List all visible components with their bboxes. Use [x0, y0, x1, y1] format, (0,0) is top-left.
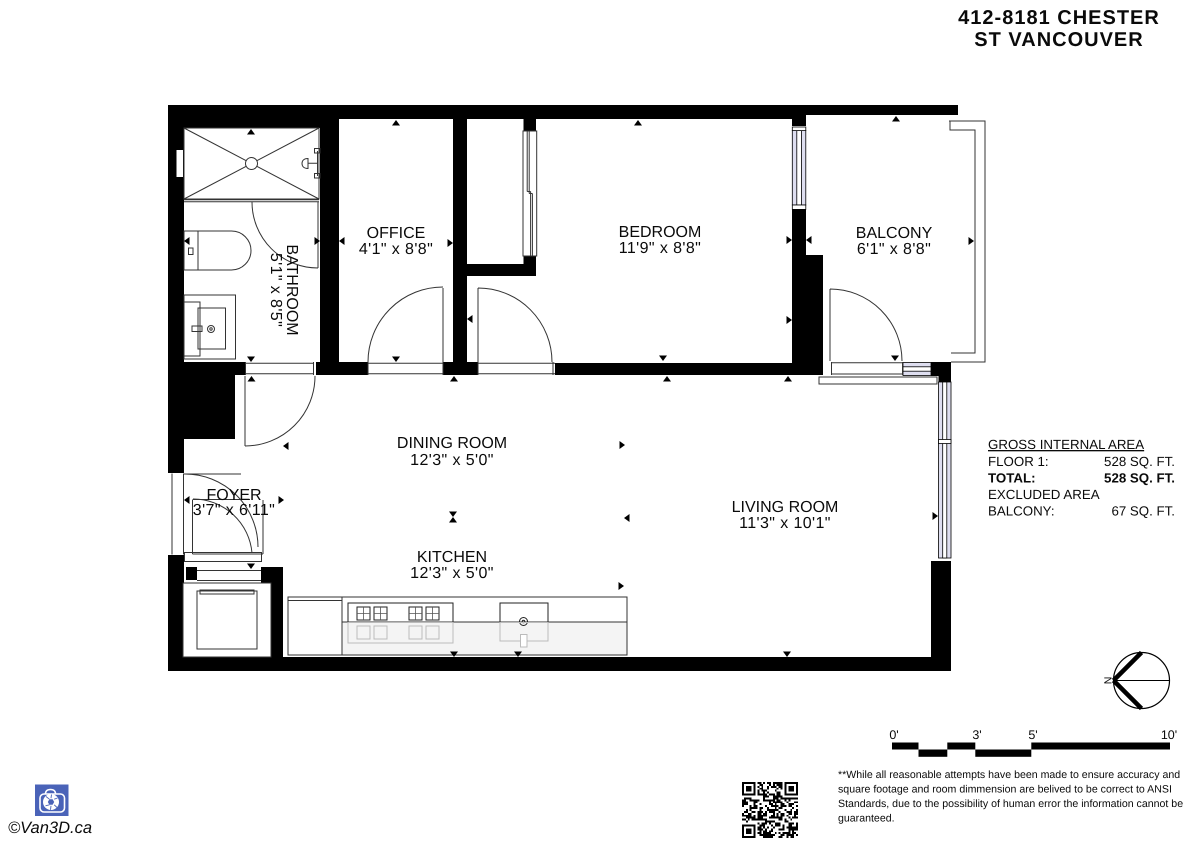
svg-text:BEDROOM: BEDROOM — [619, 224, 702, 241]
svg-text:FLOOR 1:: FLOOR 1: — [988, 454, 1049, 469]
svg-text:guaranteed.: guaranteed. — [838, 813, 895, 825]
svg-text:11'9" x 8'8": 11'9" x 8'8" — [619, 240, 701, 257]
svg-text:LIVING ROOM: LIVING ROOM — [732, 499, 839, 516]
svg-text:3': 3' — [972, 728, 981, 742]
svg-text:N: N — [1103, 677, 1115, 685]
svg-text:BALCONY:: BALCONY: — [988, 504, 1055, 519]
svg-text:KITCHEN: KITCHEN — [417, 549, 487, 566]
svg-text:10': 10' — [1161, 728, 1177, 742]
svg-text:square footage and room dimmen: square footage and room dimmension are b… — [838, 784, 1172, 796]
svg-text:4'1" x 8'8": 4'1" x 8'8" — [359, 241, 433, 258]
svg-text:6'1" x 8'8": 6'1" x 8'8" — [857, 241, 931, 258]
svg-text:5': 5' — [1028, 728, 1037, 742]
svg-text:528 SQ. FT.: 528 SQ. FT. — [1104, 454, 1175, 469]
svg-text:528 SQ. FT.: 528 SQ. FT. — [1104, 471, 1175, 486]
svg-text:EXCLUDED AREA: EXCLUDED AREA — [988, 487, 1100, 502]
svg-text:11'3" x 10'1": 11'3" x 10'1" — [739, 515, 831, 532]
svg-text:0': 0' — [889, 728, 898, 742]
svg-text:TOTAL:: TOTAL: — [988, 471, 1036, 486]
svg-text:GROSS INTERNAL AREA: GROSS INTERNAL AREA — [988, 437, 1144, 452]
svg-text:3'7" x 6'11": 3'7" x 6'11" — [193, 502, 275, 519]
svg-text:ST VANCOUVER: ST VANCOUVER — [974, 29, 1143, 51]
svg-text:412-8181 CHESTER: 412-8181 CHESTER — [958, 7, 1160, 29]
svg-text:12'3" x 5'0": 12'3" x 5'0" — [410, 565, 494, 582]
svg-text:67 SQ. FT.: 67 SQ. FT. — [1111, 504, 1175, 519]
svg-text:5'1" x 8'5": 5'1" x 8'5" — [267, 253, 284, 327]
svg-text:Standards, due to the possibil: Standards, due to the possibility of hum… — [838, 798, 1183, 810]
svg-text:12'3" x 5'0": 12'3" x 5'0" — [410, 452, 494, 469]
svg-text:BALCONY: BALCONY — [856, 225, 933, 242]
svg-text:**While all reasonable attempt: **While all reasonable attempts have bee… — [838, 769, 1180, 781]
svg-text:OFFICE: OFFICE — [367, 225, 426, 242]
svg-text:DINING ROOM: DINING ROOM — [397, 435, 507, 452]
svg-text:©Van3D.ca: ©Van3D.ca — [8, 819, 92, 837]
svg-text:BATHROOM: BATHROOM — [283, 244, 300, 335]
